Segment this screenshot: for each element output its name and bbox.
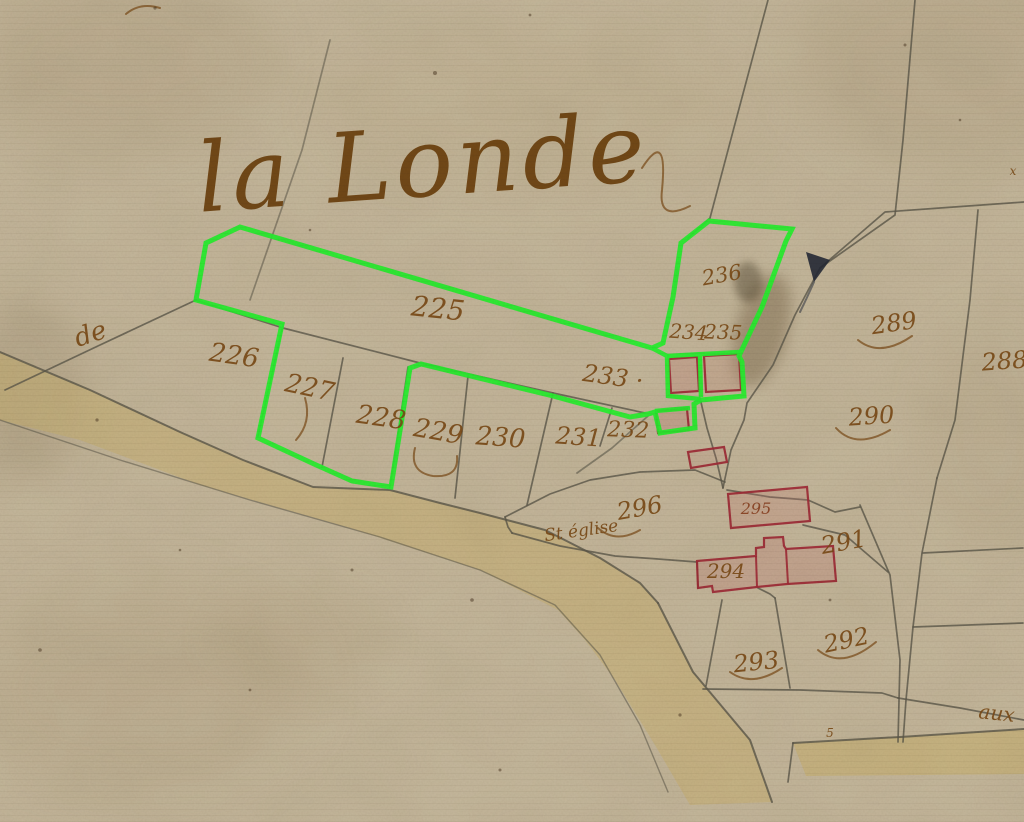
cadastral-map-image: la Londede225226227228229230231232233 ·2…: [0, 0, 1024, 822]
cadastral-map-svg: la Londede225226227228229230231232233 ·2…: [0, 0, 1024, 822]
paper-grain-texture: [0, 0, 1024, 822]
